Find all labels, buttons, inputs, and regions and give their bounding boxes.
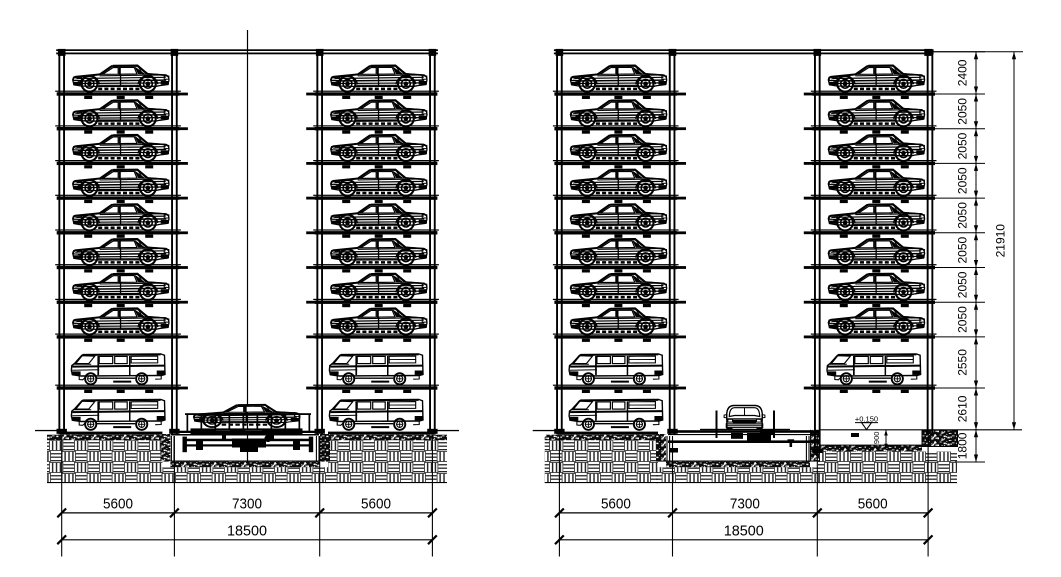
svg-text:2050: 2050 — [956, 202, 970, 229]
svg-text:18500: 18500 — [227, 523, 267, 540]
svg-text:18500: 18500 — [724, 523, 764, 540]
svg-text:5600: 5600 — [858, 496, 888, 513]
svg-text:900: 900 — [872, 432, 881, 445]
svg-text:2050: 2050 — [956, 132, 970, 159]
svg-text:5600: 5600 — [103, 496, 133, 513]
svg-text:2550: 2550 — [956, 349, 970, 376]
svg-text:2050: 2050 — [956, 306, 970, 333]
svg-text:2050: 2050 — [956, 271, 970, 298]
svg-text:+0.150: +0.150 — [855, 414, 878, 423]
svg-text:7300: 7300 — [730, 496, 760, 513]
svg-text:1800: 1800 — [956, 432, 970, 459]
svg-text:5600: 5600 — [601, 496, 631, 513]
svg-text:21910: 21910 — [994, 224, 1008, 258]
svg-text:5600: 5600 — [361, 496, 391, 513]
svg-text:2050: 2050 — [956, 236, 970, 263]
svg-text:2050: 2050 — [956, 98, 970, 125]
svg-text:2050: 2050 — [956, 167, 970, 194]
svg-text:2610: 2610 — [956, 395, 970, 422]
svg-text:2400: 2400 — [956, 59, 970, 86]
svg-text:7300: 7300 — [232, 496, 262, 513]
